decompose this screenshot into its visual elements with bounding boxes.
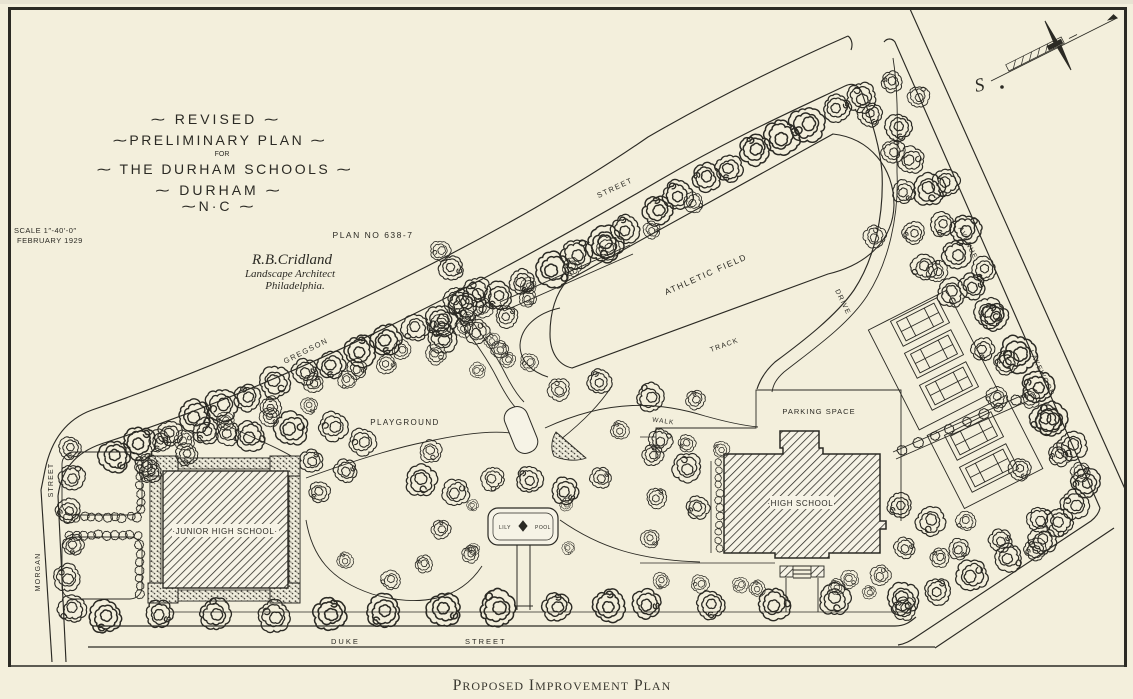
svg-text:LILY: LILY [499,525,511,531]
svg-text:FOR: FOR [215,151,230,158]
svg-text:⁓N·C ⁓: ⁓N·C ⁓ [182,198,257,214]
svg-text:POOL: POOL [535,525,551,531]
svg-text:·JUNIOR HIGH SCHOOL·: ·JUNIOR HIGH SCHOOL· [172,527,277,536]
svg-text:SCALE 1″-40′-0″: SCALE 1″-40′-0″ [14,226,77,235]
svg-text:Landscape Architect: Landscape Architect [244,268,336,280]
svg-text:·HIGH SCHOOL·: ·HIGH SCHOOL· [767,499,836,508]
svg-text:⁓ THE DURHAM SCHOOLS ⁓: ⁓ THE DURHAM SCHOOLS ⁓ [97,161,353,177]
svg-text:R.B.Cridland: R.B.Cridland [251,252,333,268]
svg-text:STREET: STREET [48,463,55,498]
svg-text:FEBRUARY 1929: FEBRUARY 1929 [17,236,83,245]
svg-text:STREET: STREET [465,637,507,646]
svg-text:MORGAN: MORGAN [35,553,42,592]
svg-text:PLAN NO 638-7: PLAN NO 638-7 [333,230,414,240]
svg-text:Philadelphia.: Philadelphia. [264,280,325,292]
svg-text:PROPOSED IMPROVEMENT PLAN: PROPOSED IMPROVEMENT PLAN [453,677,672,694]
svg-text:⁓ DURHAM ⁓: ⁓ DURHAM ⁓ [155,182,282,198]
svg-text:PARKING SPACE: PARKING SPACE [782,407,855,416]
svg-text:PLAYGROUND: PLAYGROUND [370,418,439,427]
svg-text:⁓PRELIMINARY PLAN ⁓: ⁓PRELIMINARY PLAN ⁓ [113,132,327,148]
svg-text:⁓ REVISED ⁓: ⁓ REVISED ⁓ [151,111,281,127]
svg-text:DUKE: DUKE [331,637,360,646]
